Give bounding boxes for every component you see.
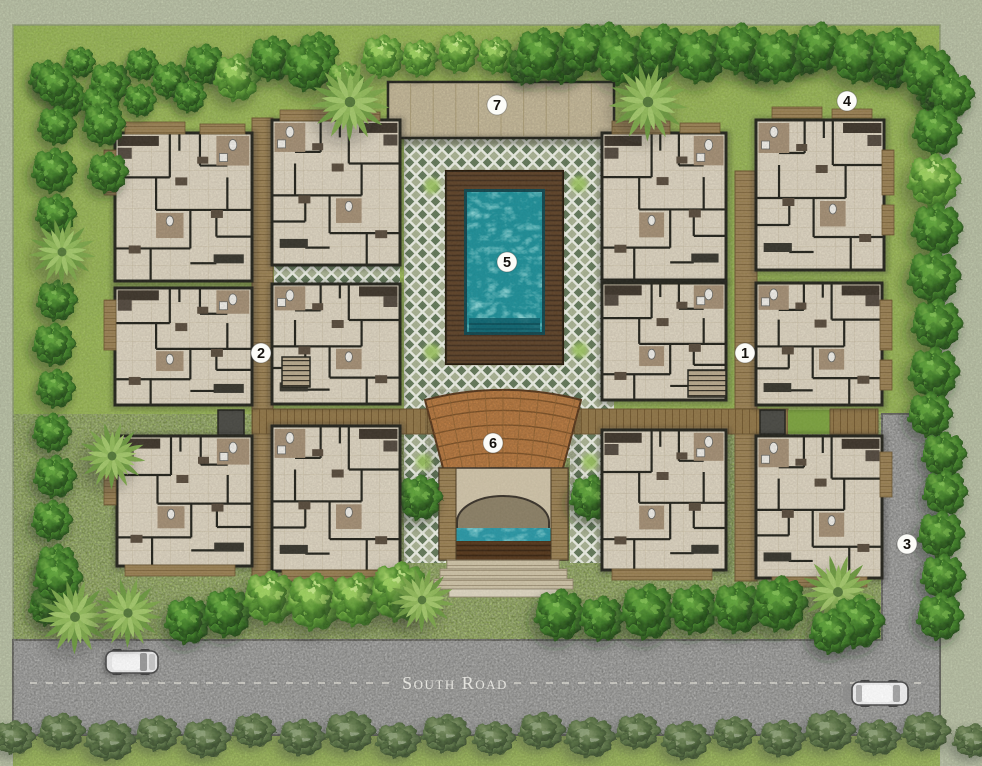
svg-text:1: 1 (741, 346, 749, 362)
svg-text:5: 5 (503, 255, 511, 271)
svg-text:3: 3 (903, 537, 911, 553)
svg-text:6: 6 (489, 436, 497, 452)
svg-text:4: 4 (843, 94, 851, 110)
svg-text:2: 2 (257, 346, 265, 362)
svg-text:7: 7 (493, 98, 501, 114)
